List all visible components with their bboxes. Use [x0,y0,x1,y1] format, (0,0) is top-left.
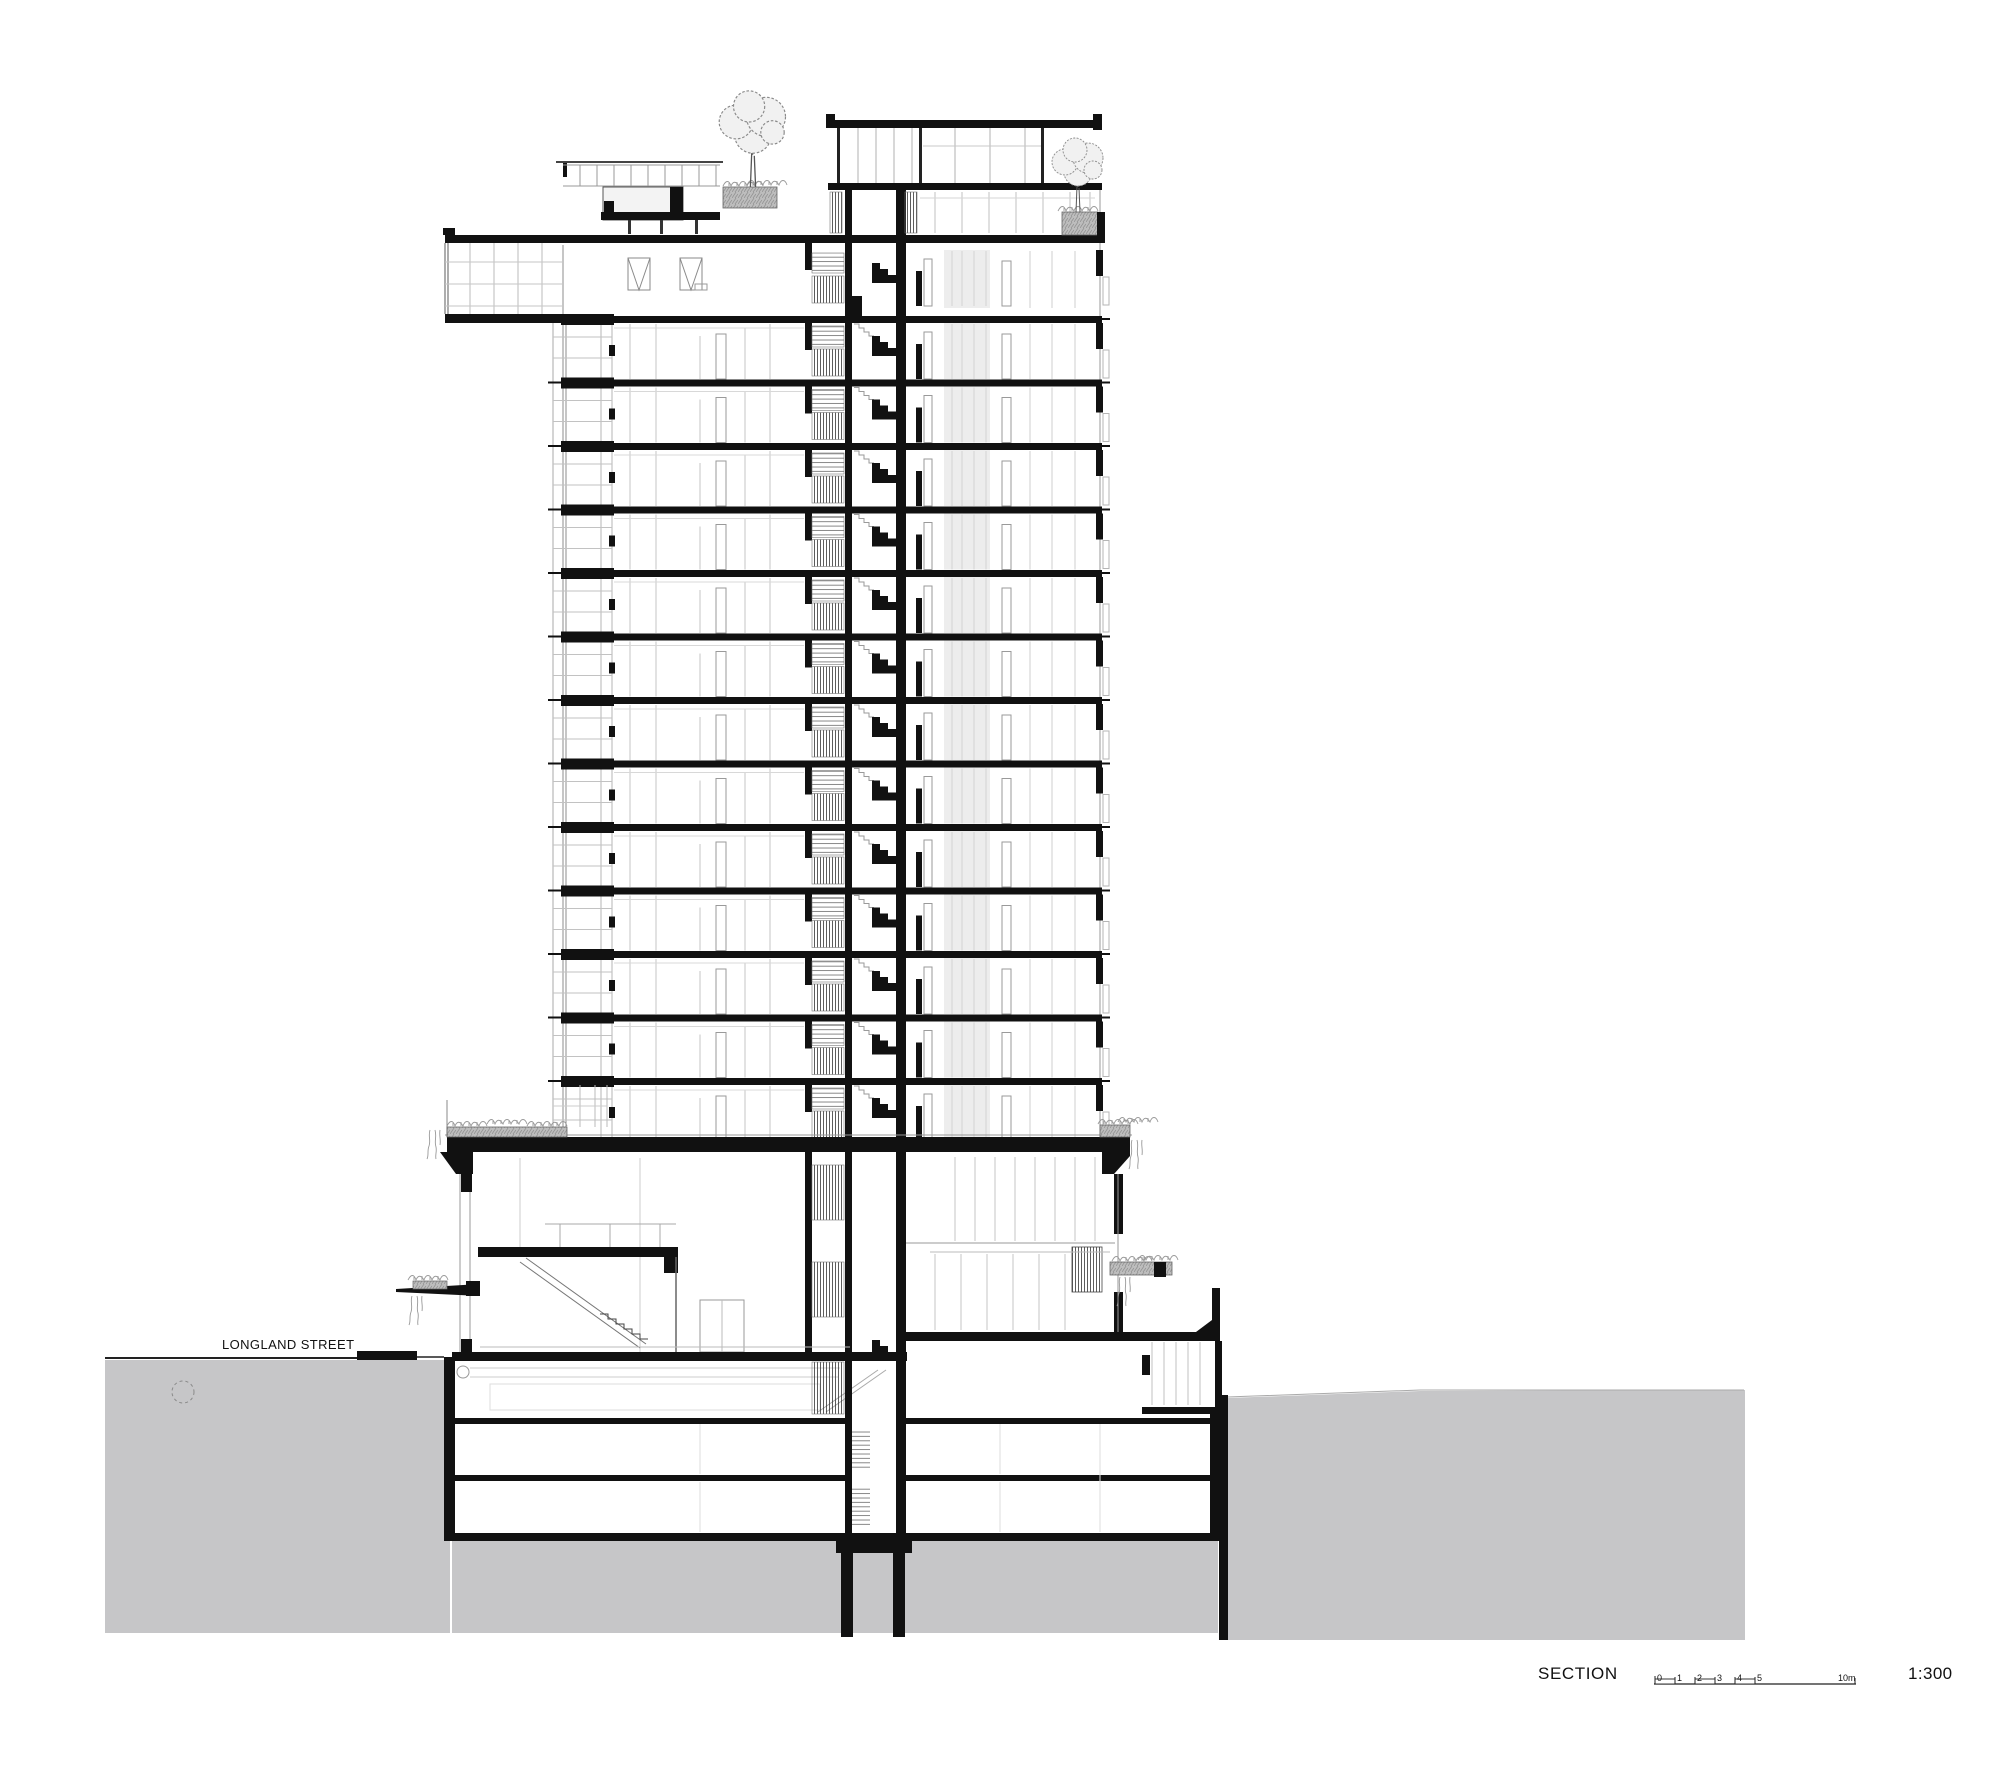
roof-planter-left [723,187,777,208]
street-kerb [357,1351,417,1360]
mezzanine-slab [478,1247,676,1257]
louvre-panel [1072,1247,1102,1292]
street-label: LONGLAND STREET [222,1337,354,1352]
scale-tick-4: 4 [1737,1673,1742,1683]
sheet: LONGLAND STREET SECTION 1:300 0 1 2 3 4 … [0,0,2000,1766]
ground [105,1351,1745,1640]
roof-terrace-level [556,162,1102,234]
rooftop-tree-right [1052,138,1103,212]
tower [443,91,1110,1533]
roof-planter-right [1062,212,1098,235]
drawing-title: SECTION [1538,1664,1618,1684]
foundation-slab [444,1533,1218,1541]
scale-tick-2: 2 [1697,1673,1702,1683]
penthouse [826,114,1105,243]
scale-tick-5: 5 [1757,1673,1762,1683]
ground-floor-slab [452,1352,907,1361]
ground-left [105,1360,450,1633]
scale-tick-1: 1 [1677,1673,1682,1683]
ground-right [1227,1390,1745,1640]
scale-tick-3: 3 [1717,1673,1722,1683]
scale-tick-0: 0 [1657,1673,1662,1683]
scale-bar [1654,1676,1856,1684]
tower-floors [548,314,1110,1141]
tower-upper-floor [443,228,1109,323]
podium-roof [447,1137,1130,1152]
street-planter-left [396,1276,480,1326]
ground-under-building [452,1541,1218,1633]
retaining-wall-right [1219,1395,1228,1640]
section-drawing [0,0,2000,1766]
basement-wall-left [444,1357,455,1541]
rooftop-tree-left [719,91,785,187]
roof-canopy [828,120,1102,128]
mezzanine-stair [520,1258,648,1348]
scale-unit-label: 10m [1838,1673,1856,1683]
scale-ratio-label: 1:300 [1908,1664,1953,1684]
